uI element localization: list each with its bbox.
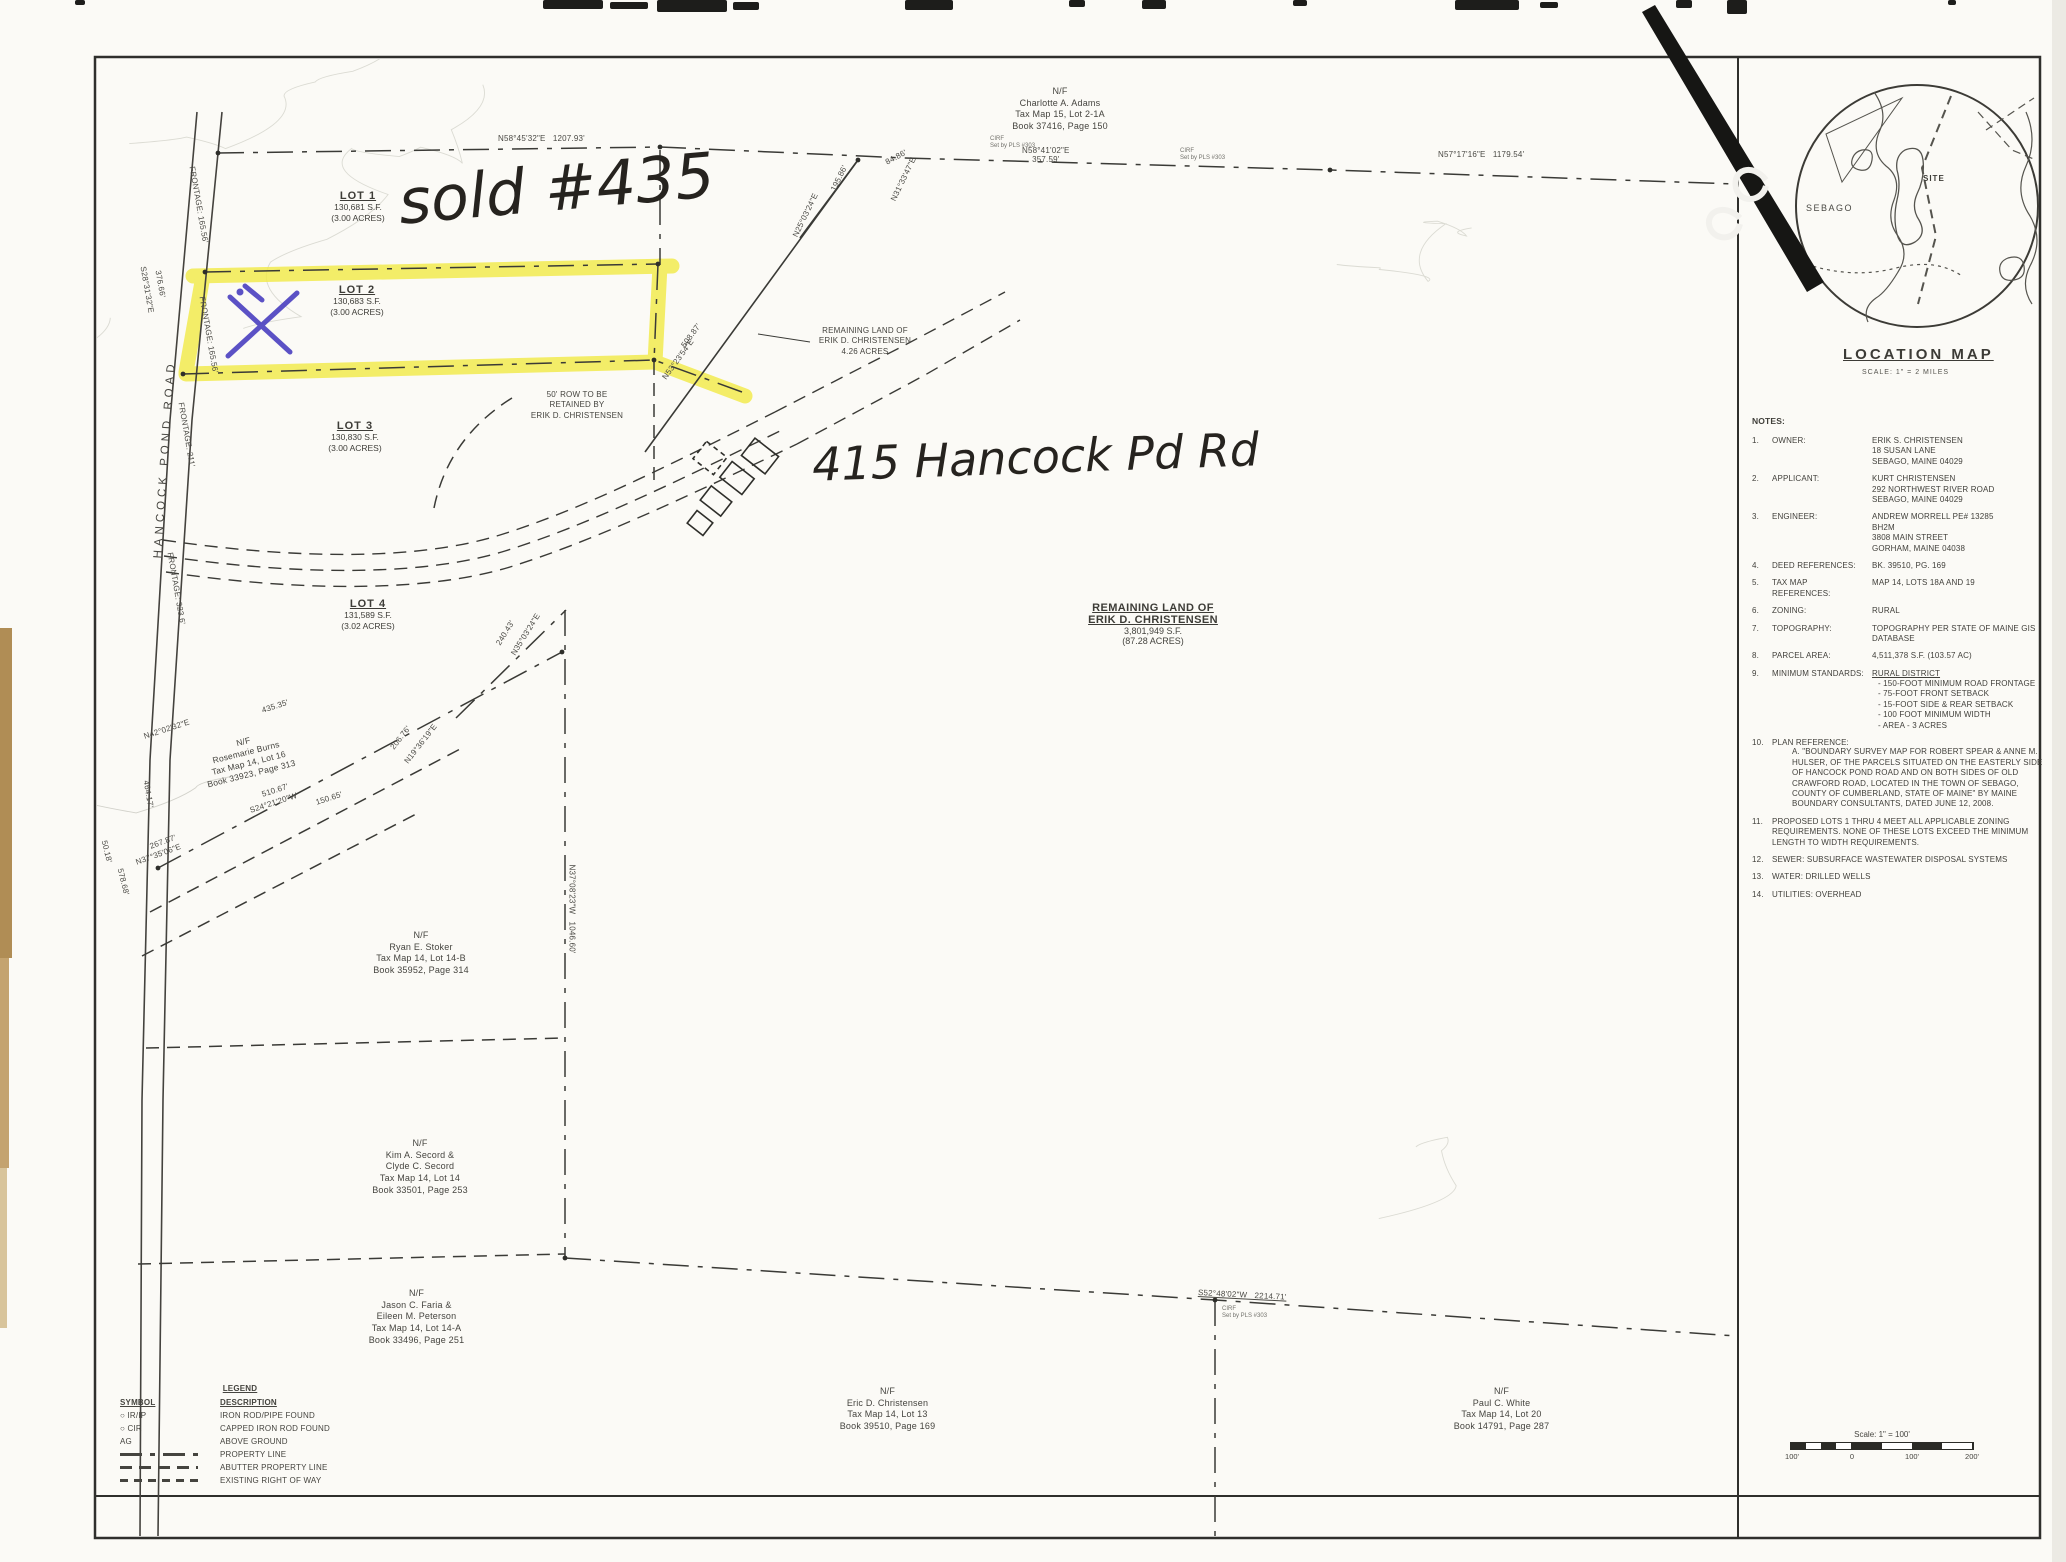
note-zoning-compliance: 11. PROPOSED LOTS 1 THRU 4 MEET ALL APPL… [1752,817,2048,848]
abutter-christensen: N/F Eric D. Christensen Tax Map 14, Lot … [820,1386,955,1433]
note-topography: 7. TOPOGRAPHY: TOPOGRAPHY PER STATE OF M… [1752,624,2048,645]
scale-bar: Scale: 1" = 100' 100' 0 100' 200' [1790,1430,1974,1462]
abutter-line-swatch [120,1466,198,1469]
legend-description: ABOVE GROUND [220,1437,410,1446]
legend-description: IRON ROD/PIPE FOUND [220,1411,410,1420]
property-line-swatch [120,1453,198,1456]
monument-note: CIRF Set by PLS #303 [990,136,1035,150]
legend-symbol: AG [120,1437,220,1446]
monument-note: CIRF Set by PLS #303 [1222,1306,1267,1320]
legend-symbol: ○ IR/IP [120,1411,220,1420]
scale-tick: 100' [1905,1452,1919,1461]
note-plan-reference-text: A. "BOUNDARY SURVEY MAP FOR ROBERT SPEAR… [1792,747,2044,809]
lot2-label: LOT 2 130,683 S.F. (3.00 ACRES) [297,284,417,318]
remaining-land-large-label: REMAINING LAND OF ERIK D. CHRISTENSEN 3,… [1078,602,1228,646]
corner-monuments [156,145,1333,1303]
pen-clip-artifact [1642,5,1824,292]
note-minimum-standards: 9. MINIMUM STANDARDS: RURAL DISTRICT - 1… [1752,669,2048,731]
bearing-label: N57°17'16"E 1179.54' [1438,150,1524,159]
note-tax-map: 5. TAX MAP REFERENCES: MAP 14, LOTS 18A … [1752,578,2048,599]
buildings [687,438,778,535]
lot3-label: LOT 3 130,830 S.F. (3.00 ACRES) [295,420,415,454]
legend-symbol-header: SYMBOL [120,1398,220,1407]
location-map-title: LOCATION MAP [1843,346,1994,363]
abutter-white: N/F Paul C. White Tax Map 14, Lot 20 Boo… [1434,1386,1569,1433]
right-of-way-line-swatch [120,1479,198,1482]
abutter-stoker: N/F Ryan E. Stoker Tax Map 14, Lot 14-B … [356,930,486,977]
note-engineer: 3. ENGINEER: ANDREW MORRELL PE# 13285 BH… [1752,512,2048,554]
row-retained-note: 50' ROW TO BE RETAINED BY ERIK D. CHRIST… [512,390,642,421]
legend-description: EXISTING RIGHT OF WAY [220,1476,410,1485]
legend-symbol: ○ CIR [120,1424,220,1433]
scale-tick: 0 [1850,1452,1854,1461]
scale-bar-label: Scale: 1" = 100' [1790,1430,1974,1439]
note-owner: 1. OWNER: ERIK S. CHRISTENSEN 18 SUSAN L… [1752,436,2048,467]
abutter-faria-peterson: N/F Jason C. Faria & Eileen M. Peterson … [344,1288,489,1346]
scanned-survey-plat: sold #435 415 Hancock Pd Rd HANCOCK POND… [0,0,2066,1562]
pen-x-mark [228,286,297,356]
location-map-scale: SCALE: 1" = 2 MILES [1862,369,1949,376]
note-utilities: 14. UTILITIES: OVERHEAD [1752,890,2048,900]
bearing-label: N58°45'32"E 1207.93' [498,134,585,143]
scale-tick: 100' [1785,1452,1799,1461]
legend-description: PROPERTY LINE [220,1450,410,1459]
legend-description: CAPPED IRON ROD FOUND [220,1424,410,1433]
legend-description: ABUTTER PROPERTY LINE [220,1463,410,1472]
notes-heading: NOTES: [1752,416,2048,427]
note-deed-references: 4. DEED REFERENCES: BK. 39510, PG. 169 [1752,561,2048,571]
remaining-land-small-label: REMAINING LAND OF ERIK D. CHRISTENSEN 4.… [800,326,930,357]
note-applicant: 2. APPLICANT: KURT CHRISTENSEN 292 NORTH… [1752,474,2048,505]
note-sewer: 12. SEWER: SUBSURFACE WASTEWATER DISPOSA… [1752,855,2048,865]
bearing-label: N37°08'23"W 1046.60' [568,865,577,954]
legend-description-header: DESCRIPTION [220,1398,410,1407]
lot4-label: LOT 4 131,589 S.F. (3.02 ACRES) [308,598,428,632]
legend-title: LEGEND [120,1384,360,1393]
legend: LEGEND SYMBOL DESCRIPTION ○ IR/IP IRON R… [120,1384,410,1485]
note-parcel-area: 8. PARCEL AREA: 4,511,378 S.F. (103.57 A… [1752,651,2048,661]
location-map-town-label: SEBAGO [1806,203,1853,213]
abutter-adams: N/F Charlotte A. Adams Tax Map 15, Lot 2… [995,86,1125,133]
monument-note: CIRF Set by PLS #303 [1180,148,1225,162]
note-zoning: 6. ZONING: RURAL [1752,606,2048,616]
lot1-label: LOT 1 130,681 S.F. (3.00 ACRES) [298,190,418,224]
location-map-site-label: SITE [1923,174,1945,183]
scale-bar-graphic [1790,1442,1974,1450]
notes-panel: NOTES: 1. OWNER: ERIK S. CHRISTENSEN 18 … [1752,416,2048,907]
scale-tick: 200' [1965,1452,1979,1461]
abutter-secord: N/F Kim A. Secord & Clyde C. Secord Tax … [350,1138,490,1196]
note-water: 13. WATER: DRILLED WELLS [1752,872,2048,882]
